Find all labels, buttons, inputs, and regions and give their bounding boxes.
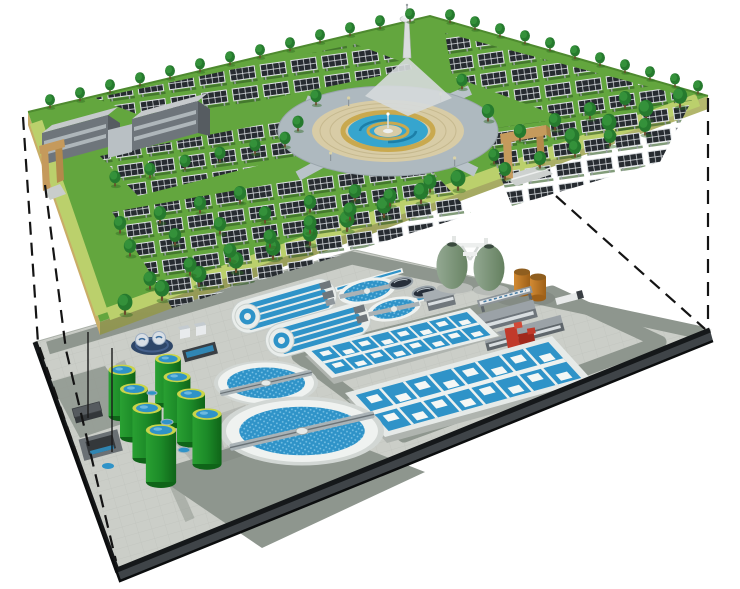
green-tank <box>146 424 176 488</box>
clarifier <box>220 397 384 466</box>
cutaway-rendering <box>0 0 740 589</box>
green-tank <box>192 408 221 469</box>
orange-tank <box>530 274 546 302</box>
building-path <box>108 124 132 158</box>
